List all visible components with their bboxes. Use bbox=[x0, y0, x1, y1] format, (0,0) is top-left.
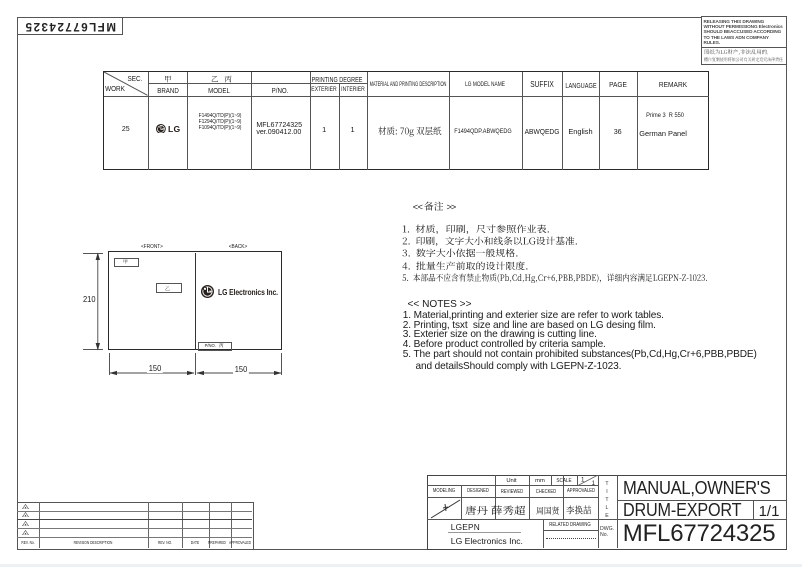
svg-text:1: 1 bbox=[581, 476, 585, 483]
svg-text:1: 1 bbox=[591, 480, 595, 485]
